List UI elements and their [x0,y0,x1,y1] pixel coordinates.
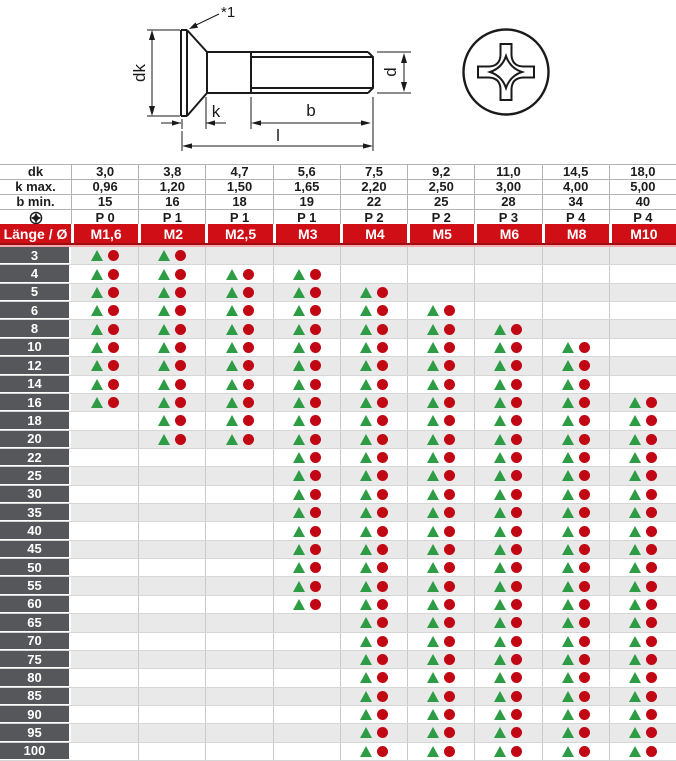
circle-icon [646,452,657,463]
availability-cell [205,614,272,631]
circle-icon [175,269,186,280]
circle-icon [310,415,321,426]
circle-icon [646,727,657,738]
circle-icon [511,581,522,592]
availability-cell [542,302,609,319]
circle-icon [310,269,321,280]
triangle-icon [494,709,506,720]
circle-icon [377,691,388,702]
triangle-icon [494,415,506,426]
size-column-header: M3 [273,224,340,243]
availability-cell [407,706,474,723]
availability-cell [407,357,474,374]
triangle-icon [562,691,574,702]
circle-icon [310,562,321,573]
triangle-icon [494,727,506,738]
triangle-icon [226,324,238,335]
dim-label-d: d [381,67,400,76]
circle-icon [444,617,455,628]
circle-icon [310,470,321,481]
circle-icon [175,415,186,426]
availability-cell [474,504,541,521]
circle-icon [108,379,119,390]
circle-icon [444,599,455,610]
availability-cell [340,486,407,503]
availability-cell [609,357,676,374]
availability-cell [542,743,609,760]
availability-cell [273,357,340,374]
triangle-icon [494,636,506,647]
triangle-icon [629,526,641,537]
availability-cell [542,559,609,576]
circle-icon [377,544,388,555]
availability-cell [407,339,474,356]
triangle-icon [226,397,238,408]
availability-cell [474,357,541,374]
availability-cell [71,633,138,650]
availability-cell [407,376,474,393]
circle-icon [511,397,522,408]
circle-icon [511,434,522,445]
triangle-icon [360,654,372,665]
availability-cell [205,651,272,668]
length-label: 90 [0,706,71,723]
circle-icon [310,599,321,610]
spec-value: P 1 [273,210,340,225]
availability-cell [138,467,205,484]
availability-cell [205,541,272,558]
availability-cell [205,706,272,723]
circle-icon [646,636,657,647]
availability-cell [71,706,138,723]
circle-icon [243,305,254,316]
table-row: 80 [0,669,676,687]
length-label: 85 [0,688,71,705]
availability-cell [340,614,407,631]
circle-icon [377,654,388,665]
triangle-icon [494,654,506,665]
length-label: 60 [0,596,71,613]
availability-cell [407,302,474,319]
availability-cell [542,669,609,686]
table-row: 55 [0,577,676,595]
triangle-icon [360,360,372,371]
size-column-header: M4 [340,224,407,243]
circle-icon [377,617,388,628]
availability-cell [138,522,205,539]
availability-cell [474,247,541,264]
spec-header-table: dk3,03,84,75,67,59,211,014,518,0k max.0,… [0,164,676,225]
length-label: 6 [0,302,71,319]
availability-cell [340,651,407,668]
availability-cell [205,577,272,594]
availability-cell [609,486,676,503]
availability-cell [273,559,340,576]
availability-cell [542,577,609,594]
circle-icon [511,415,522,426]
circle-icon [310,544,321,555]
spec-value: P 1 [138,210,205,225]
availability-cell [71,357,138,374]
circle-icon [579,709,590,720]
triangle-icon [494,452,506,463]
circle-icon [377,434,388,445]
triangle-icon [293,489,305,500]
circle-icon [243,342,254,353]
triangle-icon [293,287,305,298]
triangle-icon [427,470,439,481]
triangle-icon [494,342,506,353]
circle-icon [310,507,321,518]
dim-label-l: l [276,126,280,145]
triangle-icon [293,562,305,573]
availability-cell [205,431,272,448]
table-row: 8 [0,320,676,338]
availability-cell [609,614,676,631]
corner-header-cell: Länge / Ø [0,224,71,243]
availability-cell [71,669,138,686]
availability-cell [474,394,541,411]
circle-icon [243,397,254,408]
triangle-icon [562,562,574,573]
availability-cell [474,486,541,503]
availability-cell [340,339,407,356]
availability-cell [340,669,407,686]
triangle-icon [629,581,641,592]
triangle-icon [158,250,170,261]
circle-icon [310,305,321,316]
circle-icon [108,269,119,280]
availability-cell [407,669,474,686]
table-row: 6 [0,302,676,320]
spec-value: 9,2 [407,165,474,179]
dimension-labels: dk k b l d *1 [130,4,400,145]
spec-value: 1,65 [273,180,340,194]
triangle-icon [158,379,170,390]
triangle-icon [293,507,305,518]
size-column-header: M2 [138,224,205,243]
table-row: 20 [0,431,676,449]
circle-icon [377,360,388,371]
triangle-icon [427,305,439,316]
circle-icon [511,526,522,537]
spec-value: P 4 [542,210,609,225]
spec-value: 3,00 [474,180,541,194]
availability-cell [71,247,138,264]
circle-icon [511,727,522,738]
availability-cell [71,559,138,576]
triangle-icon [562,636,574,647]
availability-cell [542,320,609,337]
availability-cell [609,577,676,594]
availability-cell [138,412,205,429]
availability-cell [542,596,609,613]
circle-icon [646,434,657,445]
circle-icon [444,489,455,500]
circle-icon [579,507,590,518]
availability-cell [474,284,541,301]
table-row: 16 [0,394,676,412]
triangle-icon [494,544,506,555]
triangle-icon [629,470,641,481]
table-row: 18 [0,412,676,430]
availability-cell [340,559,407,576]
availability-cell [205,302,272,319]
circle-icon [444,397,455,408]
triangle-icon [226,415,238,426]
availability-cell [474,412,541,429]
circle-icon [377,470,388,481]
length-label: 80 [0,669,71,686]
availability-cell [407,577,474,594]
circle-icon [377,526,388,537]
availability-cell [474,688,541,705]
availability-cell [340,357,407,374]
triangle-icon [427,507,439,518]
circle-icon [511,672,522,683]
table-row: 25 [0,467,676,485]
circle-icon [646,691,657,702]
availability-cell [205,339,272,356]
availability-cell [138,706,205,723]
table-row: 90 [0,706,676,724]
availability-cell [340,376,407,393]
triangle-icon [427,727,439,738]
availability-cell [205,412,272,429]
availability-cell [542,247,609,264]
availability-cell [71,449,138,466]
availability-cell [474,577,541,594]
triangle-icon [158,324,170,335]
availability-cell [542,633,609,650]
availability-cell [138,320,205,337]
table-row: 45 [0,541,676,559]
circle-icon [377,397,388,408]
availability-cell [273,614,340,631]
availability-cell [407,504,474,521]
availability-cell [138,669,205,686]
circle-icon [175,324,186,335]
availability-cell [609,449,676,466]
triangle-icon [360,581,372,592]
availability-cell [273,320,340,337]
availability-cell [71,376,138,393]
triangle-icon [158,342,170,353]
triangle-icon [360,599,372,610]
availability-cell [474,743,541,760]
triangle-icon [360,489,372,500]
spec-value: 11,0 [474,165,541,179]
triangle-icon [629,672,641,683]
availability-cell [542,467,609,484]
availability-cell [542,265,609,282]
availability-cell [407,467,474,484]
triangle-icon [91,305,103,316]
circle-icon [444,562,455,573]
triangle-icon [360,746,372,757]
triangle-icon [158,415,170,426]
length-label: 12 [0,357,71,374]
length-label: 30 [0,486,71,503]
circle-icon [175,287,186,298]
circle-icon [646,470,657,481]
spec-value: 22 [340,195,407,209]
circle-icon [511,379,522,390]
length-label: 55 [0,577,71,594]
availability-cell [273,706,340,723]
circle-icon [646,415,657,426]
circle-icon [444,544,455,555]
triangle-icon [293,379,305,390]
availability-cell [609,522,676,539]
triangle-icon [562,727,574,738]
availability-cell [542,614,609,631]
spec-label: dk [0,165,71,179]
availability-cell [71,467,138,484]
availability-cell [205,504,272,521]
circle-icon [377,672,388,683]
triangle-icon [562,507,574,518]
availability-cell [71,265,138,282]
availability-cell [205,376,272,393]
circle-icon [579,617,590,628]
circle-icon [646,581,657,592]
triangle-icon [562,397,574,408]
circle-icon [579,672,590,683]
availability-cell [474,467,541,484]
triangle-icon [427,489,439,500]
circle-icon [511,709,522,720]
availability-cell [340,577,407,594]
circle-icon [377,287,388,298]
availability-cell [609,302,676,319]
availability-cell [71,320,138,337]
phillips-recess-inner [490,56,522,88]
circle-icon [579,746,590,757]
spec-row: dk3,03,84,75,67,59,211,014,518,0 [0,165,676,180]
triangle-icon [427,746,439,757]
circle-icon [310,526,321,537]
screw-side-view [181,30,373,116]
circle-icon [310,379,321,390]
availability-cell [542,284,609,301]
availability-cell [138,265,205,282]
circle-icon [377,324,388,335]
availability-cell [138,633,205,650]
triangle-icon [629,489,641,500]
availability-cell [474,633,541,650]
size-column-header: M2,5 [205,224,272,243]
triangle-icon [293,526,305,537]
triangle-icon [494,617,506,628]
availability-cell [609,467,676,484]
availability-cell [474,431,541,448]
length-label: 25 [0,467,71,484]
availability-cell [71,688,138,705]
availability-cell [205,394,272,411]
triangle-icon [562,526,574,537]
circle-icon [646,617,657,628]
availability-cell [340,688,407,705]
spec-value: P 2 [340,210,407,225]
triangle-icon [427,397,439,408]
circle-icon [444,379,455,390]
triangle-icon [360,544,372,555]
triangle-icon [562,342,574,353]
triangle-icon [360,691,372,702]
circle-icon [646,507,657,518]
availability-cell [138,431,205,448]
circle-icon [511,617,522,628]
spec-value: P 2 [407,210,474,225]
length-label: 50 [0,559,71,576]
availability-cell [138,486,205,503]
availability-cell [71,504,138,521]
phillips-front-view [464,30,549,115]
triangle-icon [629,709,641,720]
circle-icon [646,672,657,683]
availability-cell [474,596,541,613]
circle-icon [579,562,590,573]
length-label: 10 [0,339,71,356]
triangle-icon [494,470,506,481]
circle-icon [310,360,321,371]
size-column-header: M6 [474,224,541,243]
length-label: 100 [0,743,71,760]
circle-icon [377,379,388,390]
table-row: 85 [0,688,676,706]
length-label: 14 [0,376,71,393]
triangle-icon [360,470,372,481]
circle-icon [646,654,657,665]
availability-cell [205,724,272,741]
circle-icon [444,507,455,518]
triangle-icon [562,452,574,463]
availability-cell [609,743,676,760]
availability-cell [71,596,138,613]
triangle-icon [562,654,574,665]
circle-icon [511,654,522,665]
triangle-icon [629,746,641,757]
spec-label: b min. [0,195,71,209]
table-row: 70 [0,633,676,651]
availability-cell [474,522,541,539]
availability-cell [138,449,205,466]
spec-value: 34 [542,195,609,209]
spec-value: 1,20 [138,180,205,194]
circle-icon [579,379,590,390]
availability-cell [609,320,676,337]
circle-icon [579,415,590,426]
triangle-icon [158,434,170,445]
spec-row: k max.0,961,201,501,652,202,503,004,005,… [0,180,676,195]
triangle-icon [226,342,238,353]
circle-icon [310,434,321,445]
size-column-header: M8 [542,224,609,243]
circle-icon [243,324,254,335]
circle-icon [511,342,522,353]
availability-cell [474,376,541,393]
triangle-icon [360,434,372,445]
circle-icon [108,287,119,298]
availability-cell [71,577,138,594]
triangle-icon [91,269,103,280]
availability-cell [273,651,340,668]
availability-cell [340,467,407,484]
circle-icon [108,305,119,316]
circle-icon [646,526,657,537]
circle-icon [511,636,522,647]
